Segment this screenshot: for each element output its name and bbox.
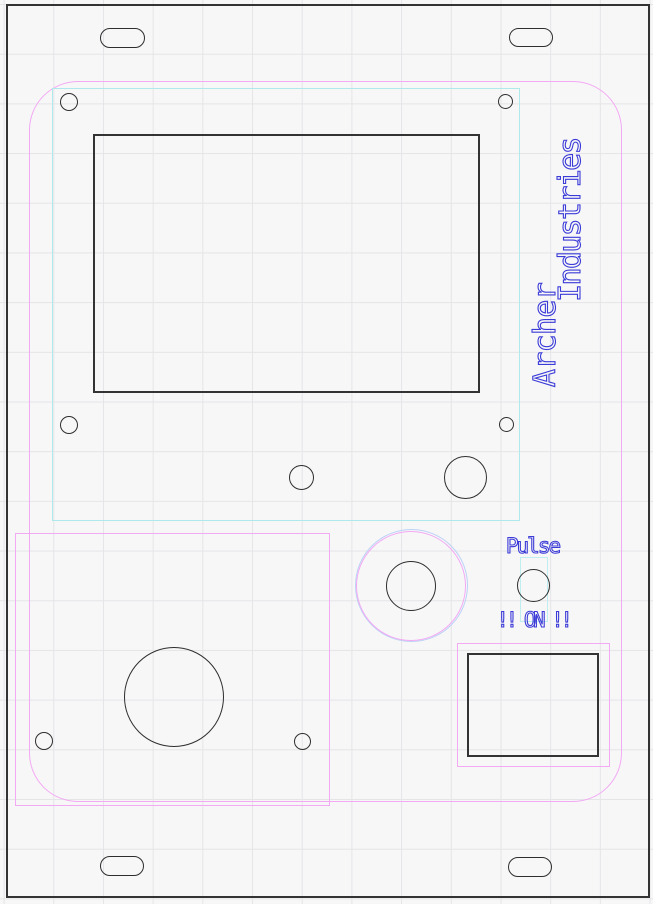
- hole-mid-small: [289, 465, 314, 490]
- mounting-slot-top-left: [100, 28, 145, 48]
- mounting-slot-bottom-left: [100, 856, 144, 876]
- connector-cutout: [467, 653, 599, 757]
- screw-hole-bottom-left: [60, 416, 78, 434]
- screw-hole-top-right: [498, 94, 513, 109]
- on-warning-label: !! ON !!: [486, 610, 580, 631]
- pulse-button-hole: [517, 569, 550, 602]
- mounting-slot-top-right: [509, 28, 553, 47]
- screw-hole-bottom-right: [499, 417, 514, 432]
- speaker-screw-hole-right: [294, 733, 311, 750]
- pulse-label: Pulse: [490, 536, 575, 557]
- hole-mid-large: [444, 456, 487, 499]
- screw-hole-top-left: [60, 93, 78, 111]
- brand-text-line2: Industries: [556, 135, 582, 305]
- speaker-screw-hole-left: [35, 732, 53, 750]
- cad-drawing-canvas: Archer Industries Pulse !! ON !!: [0, 0, 653, 904]
- mounting-slot-bottom-right: [508, 857, 552, 877]
- speaker-hole: [124, 647, 224, 747]
- display-cutout: [93, 134, 480, 393]
- knob-hole: [386, 561, 436, 611]
